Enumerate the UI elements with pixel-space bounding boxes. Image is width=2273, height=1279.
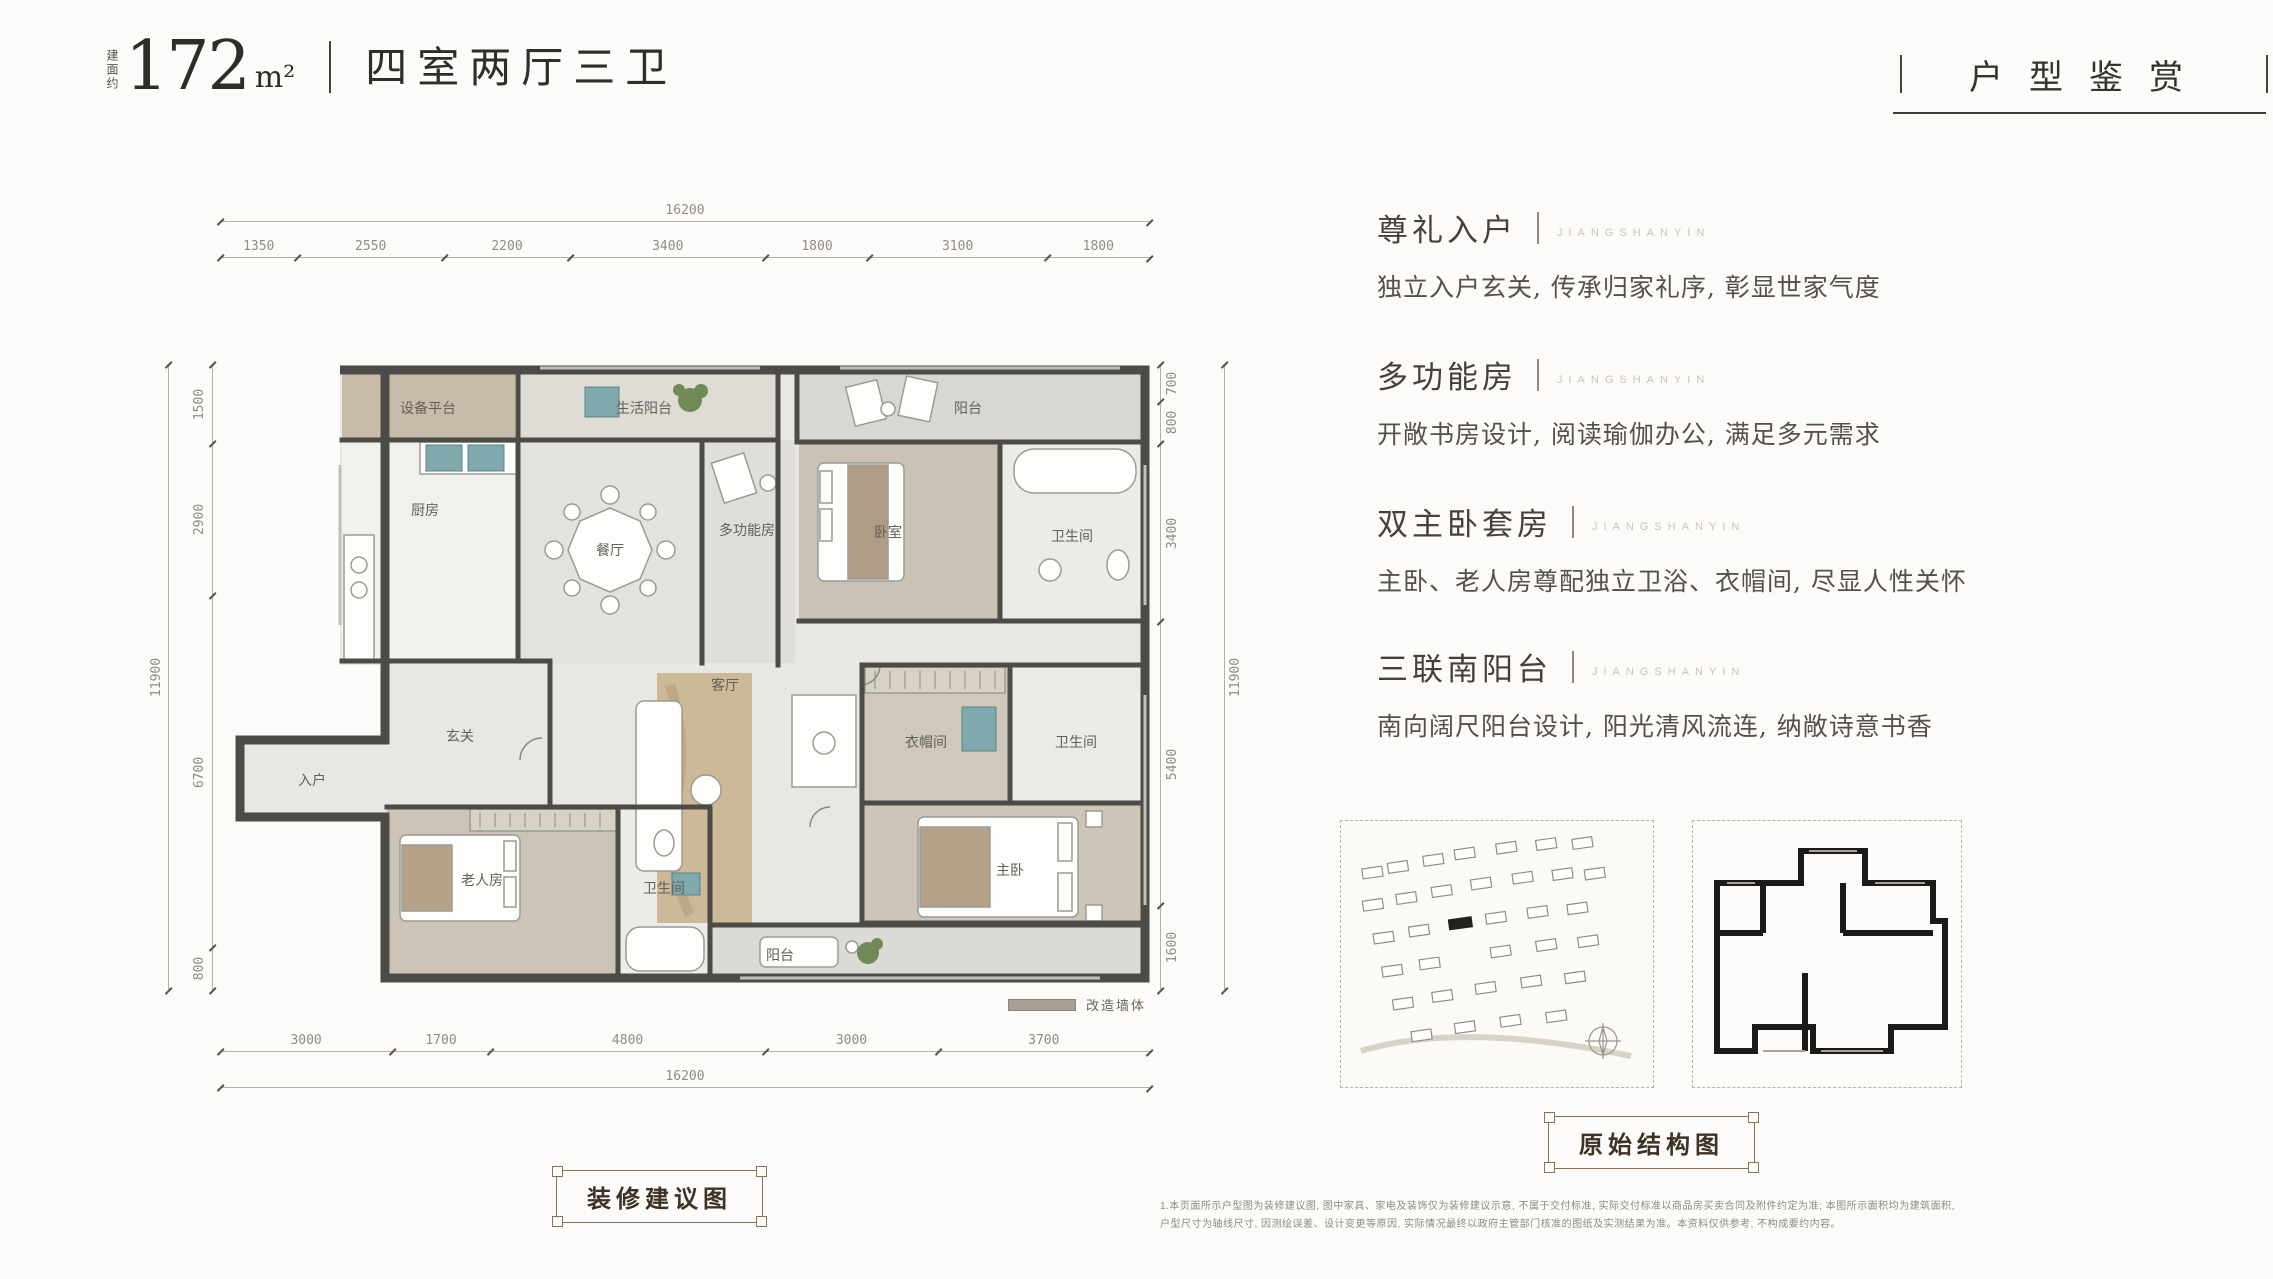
dim-segment: 3100 <box>869 226 1047 258</box>
tag-corner <box>1748 1112 1759 1123</box>
dim-segment: 3700 <box>938 1022 1150 1052</box>
area-prefix-label: 建面约 <box>104 49 121 99</box>
room-label: 衣帽间 <box>905 734 947 750</box>
tag-corner <box>1748 1162 1759 1173</box>
dim-segment: 11900 <box>1225 365 1247 990</box>
room-label: 玄关 <box>446 728 474 744</box>
dim-segment: 2200 <box>444 226 570 258</box>
feature-title: 多功能房 <box>1377 352 1517 397</box>
header-divider <box>329 41 331 93</box>
dim-segment: 3400 <box>1161 444 1185 623</box>
structure-box <box>1692 820 1962 1088</box>
header-area-block: 建面约 172 m² 四室两厅三卫 <box>104 34 677 99</box>
dim-segment: 800 <box>188 948 212 990</box>
tag-corner <box>756 1166 767 1177</box>
dim-segment: 2550 <box>297 226 443 258</box>
dim-segment: 3000 <box>220 1022 392 1052</box>
disclaimer-line: 户型尺寸为轴线尺寸, 因测绘误差、设计变更等原因, 实际情况最终以政府主管部门核… <box>1160 1216 2268 1234</box>
dim-segment: 700 <box>1161 365 1185 402</box>
dim-top-segments: 1350 2550 2200 3400 1800 3100 1800 <box>220 226 1150 258</box>
dim-right-segments: 700 800 3400 5400 1600 <box>1160 365 1185 990</box>
dim-segment: 1700 <box>392 1022 490 1052</box>
area-value: 172 <box>125 35 249 99</box>
title-right-bar <box>2266 55 2268 93</box>
room-label: 阳台 <box>766 947 794 963</box>
feature-desc: 主卧、老人房尊配独立卫浴、衣帽间, 尽显人性关怀 <box>1377 562 2037 598</box>
room-label: 餐厅 <box>596 542 624 558</box>
room-label: 主卧 <box>996 862 1024 878</box>
feature-watermark: JIANGSHANYIN <box>1592 511 1745 533</box>
feature-title: 尊礼入户 <box>1377 205 1517 250</box>
room-label: 卫生间 <box>643 880 685 896</box>
title-underline <box>1893 112 2266 114</box>
room-label: 卧室 <box>874 524 902 540</box>
legend: 改造墙体 <box>1008 995 1146 1014</box>
disclaimer: 1.本页面所示户型图为装修建议图, 图中家具、家电及装饰仅为装修建议示意, 不属… <box>1160 1198 2268 1234</box>
room-label: 客厅 <box>711 677 739 693</box>
dim-segment: 1600 <box>1161 906 1185 990</box>
structure-caption: 原始结构图 <box>1579 1130 1724 1159</box>
feature-watermark: JIANGSHANYIN <box>1557 364 1710 386</box>
dim-segment: 3400 <box>570 226 765 258</box>
feature-desc: 南向阔尺阳台设计, 阳光清风流连, 纳敞诗意书香 <box>1377 707 2037 743</box>
feature-divider <box>1572 651 1574 683</box>
dim-segment: 11900 <box>146 365 168 990</box>
room-label: 厨房 <box>411 502 439 518</box>
dim-segment: 4800 <box>490 1022 766 1052</box>
dim-bottom-overall: 16200 <box>220 1058 1150 1088</box>
feature-divider <box>1537 212 1539 244</box>
structure-drawing <box>1693 821 1961 1087</box>
feature-title: 双主卧套房 <box>1377 499 1552 544</box>
legend-swatch <box>1008 999 1076 1011</box>
page: 建面约 172 m² 四室两厅三卫 户型鉴赏 16200 1350 2550 2… <box>0 0 2273 1279</box>
dim-segment: 800 <box>1161 402 1185 444</box>
tag-corner <box>756 1216 767 1227</box>
dim-left-overall: 11900 <box>146 365 169 990</box>
feature-watermark: JIANGSHANYIN <box>1592 656 1745 678</box>
room-label: 阳台 <box>954 400 982 416</box>
tag-corner <box>1544 1112 1555 1123</box>
disclaimer-line: 1.本页面所示户型图为装修建议图, 图中家具、家电及装饰仅为装修建议示意, 不属… <box>1160 1198 2268 1216</box>
room-label: 卫生间 <box>1055 734 1097 750</box>
dim-segment: 5400 <box>1161 622 1185 906</box>
dim-bottom-segments: 3000 1700 4800 3000 3700 <box>220 1022 1150 1052</box>
tag-corner <box>552 1166 563 1177</box>
room-label: 老人房 <box>461 872 503 888</box>
structure-caption-tag: 原始结构图 <box>1548 1116 1755 1169</box>
feature-desc: 开敞书房设计, 阅读瑜伽办公, 满足多元需求 <box>1377 415 2037 451</box>
room-label: 多功能房 <box>719 522 775 538</box>
feature-watermark: JIANGSHANYIN <box>1557 217 1710 239</box>
dim-segment: 1350 <box>220 226 297 258</box>
layout-name: 四室两厅三卫 <box>365 34 677 99</box>
siteplan-box <box>1340 820 1654 1088</box>
dim-segment: 16200 <box>220 190 1150 222</box>
title-left-bar <box>1900 55 1902 93</box>
plan-caption-tag: 装修建议图 <box>556 1170 763 1223</box>
dim-segment: 6700 <box>188 596 212 948</box>
dim-segment: 1800 <box>765 226 868 258</box>
room-label: 设备平台 <box>400 400 456 416</box>
page-title: 户型鉴赏 <box>1959 50 2209 99</box>
siteplan-drawing <box>1341 821 1653 1087</box>
feature-block: 多功能房 JIANGSHANYIN 开敞书房设计, 阅读瑜伽办公, 满足多元需求 <box>1377 352 2037 451</box>
room-label: 卫生间 <box>1051 528 1093 544</box>
legend-label: 改造墙体 <box>1086 995 1146 1014</box>
area-unit: m² <box>255 60 295 99</box>
feature-divider <box>1537 359 1539 391</box>
dim-left-segments: 1500 2900 6700 800 <box>188 365 213 990</box>
dim-segment: 2900 <box>188 444 212 596</box>
dim-top-overall: 16200 <box>220 190 1150 222</box>
feature-divider <box>1572 506 1574 538</box>
tag-corner <box>552 1216 563 1227</box>
dim-segment: 1500 <box>188 365 212 444</box>
page-title-block: 户型鉴赏 <box>1900 50 2268 98</box>
room-label: 入户 <box>298 772 326 788</box>
tag-corner <box>1544 1162 1555 1173</box>
feature-block: 三联南阳台 JIANGSHANYIN 南向阔尺阳台设计, 阳光清风流连, 纳敞诗… <box>1377 644 2037 743</box>
dim-right-overall: 11900 <box>1224 365 1247 990</box>
feature-title: 三联南阳台 <box>1377 644 1552 689</box>
floorplan-drawing: 设备平台 生活阳台 厨房 餐厅 多功能房 阳台 卧室 卫生间 玄关 入户 客厅 … <box>220 365 1150 990</box>
plan-caption: 装修建议图 <box>587 1184 732 1213</box>
feature-desc: 独立入户玄关, 传承归家礼序, 彰显世家气度 <box>1377 268 2037 304</box>
dim-segment: 16200 <box>220 1058 1150 1088</box>
feature-block: 尊礼入户 JIANGSHANYIN 独立入户玄关, 传承归家礼序, 彰显世家气度 <box>1377 205 2037 304</box>
dim-segment: 3000 <box>765 1022 937 1052</box>
dim-segment: 1800 <box>1047 226 1150 258</box>
feature-block: 双主卧套房 JIANGSHANYIN 主卧、老人房尊配独立卫浴、衣帽间, 尽显人… <box>1377 499 2037 598</box>
room-label: 生活阳台 <box>616 400 672 416</box>
